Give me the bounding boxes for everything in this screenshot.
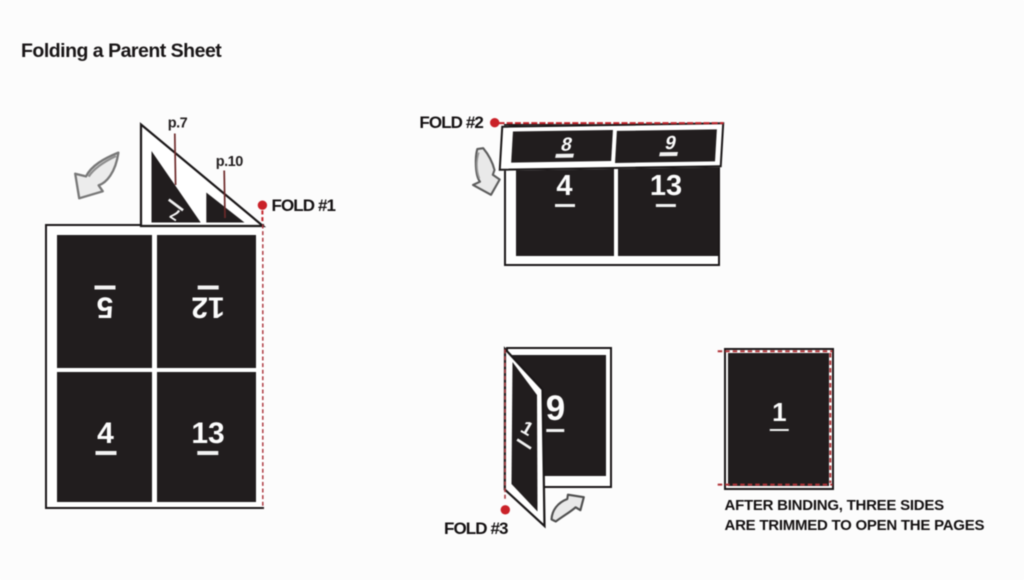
svg-text:p.7: p.7 [168, 116, 188, 132]
svg-text:p.10: p.10 [216, 154, 243, 170]
